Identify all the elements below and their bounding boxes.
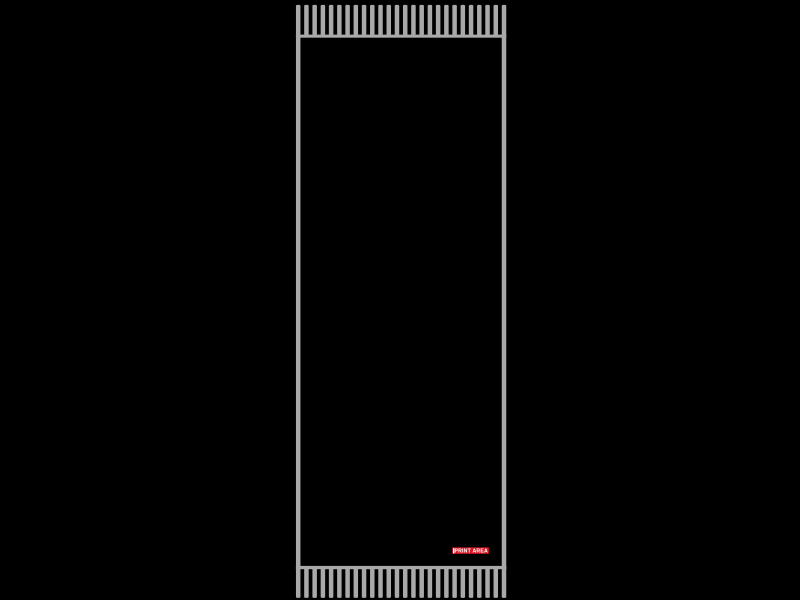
svg-text:PRINT AREA: PRINT AREA bbox=[454, 549, 488, 555]
